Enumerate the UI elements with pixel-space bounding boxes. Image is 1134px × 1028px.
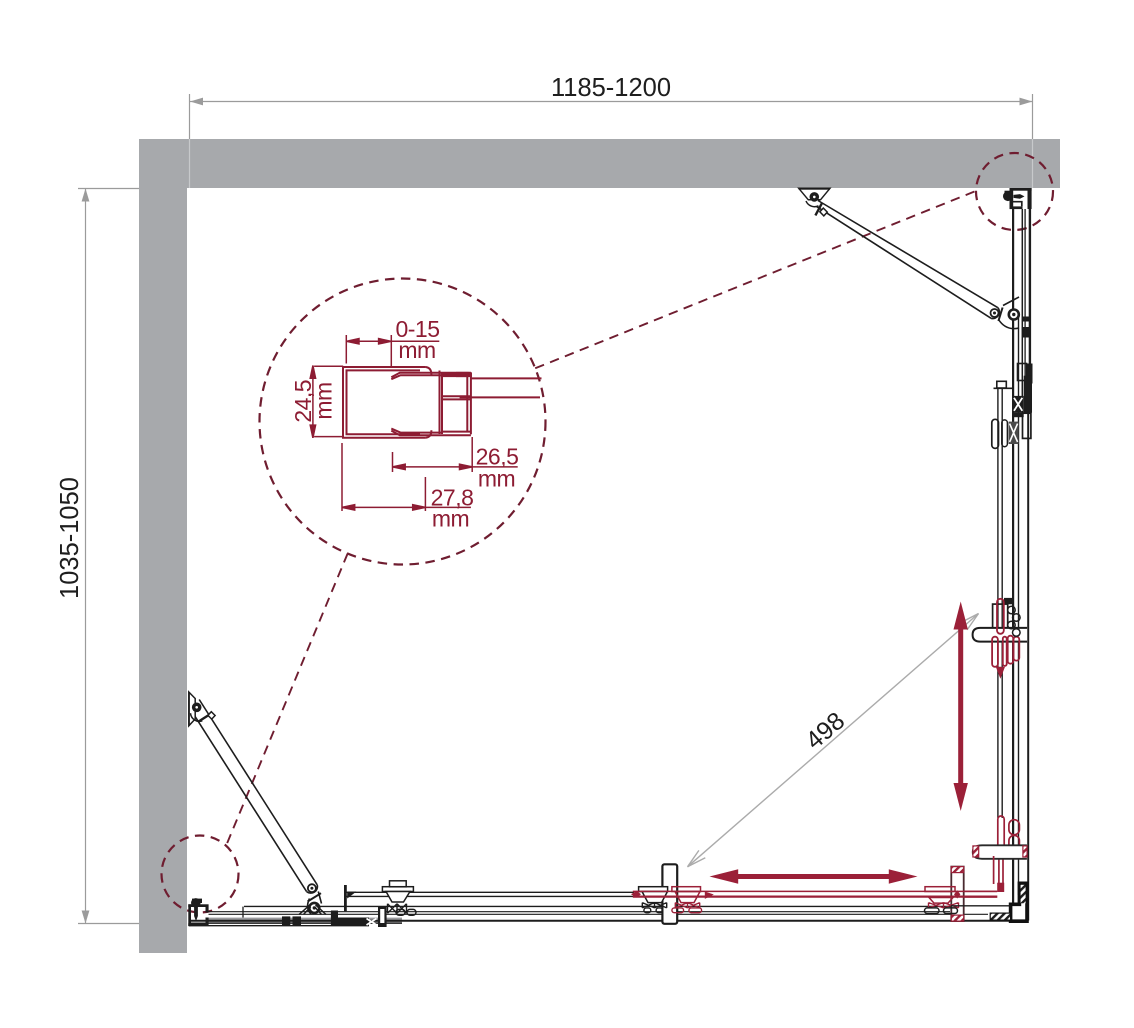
svg-text:1035-1050: 1035-1050: [56, 477, 84, 599]
svg-text:mm: mm: [432, 506, 469, 532]
svg-text:498: 498: [800, 707, 850, 755]
svg-text:mm: mm: [478, 466, 515, 492]
svg-text:1185-1200: 1185-1200: [551, 74, 671, 102]
svg-text:mm: mm: [398, 337, 435, 363]
svg-text:mm: mm: [311, 382, 337, 419]
